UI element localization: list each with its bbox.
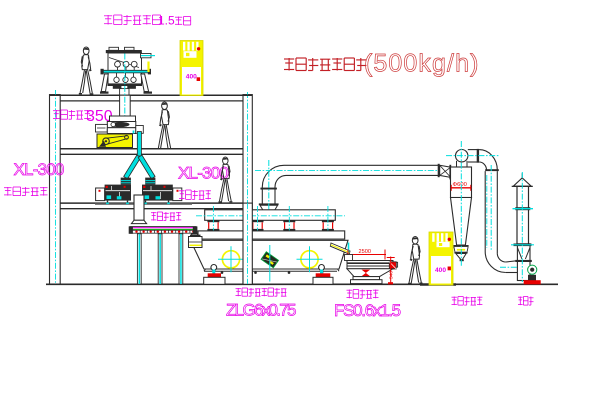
svg-text:540: 540 [389, 271, 395, 279]
svg-text:XL-300: XL-300 [14, 160, 64, 179]
svg-text:400: 400 [186, 74, 197, 81]
svg-text:ZLG6x0.75: ZLG6x0.75 [226, 301, 296, 320]
svg-text:1.5: 1.5 [158, 14, 175, 28]
svg-text:2500: 2500 [359, 249, 371, 255]
svg-text:FS0.6x1.5: FS0.6x1.5 [334, 301, 401, 320]
svg-text:(500kg/h): (500kg/h) [364, 50, 480, 78]
svg-text:400: 400 [435, 267, 446, 274]
